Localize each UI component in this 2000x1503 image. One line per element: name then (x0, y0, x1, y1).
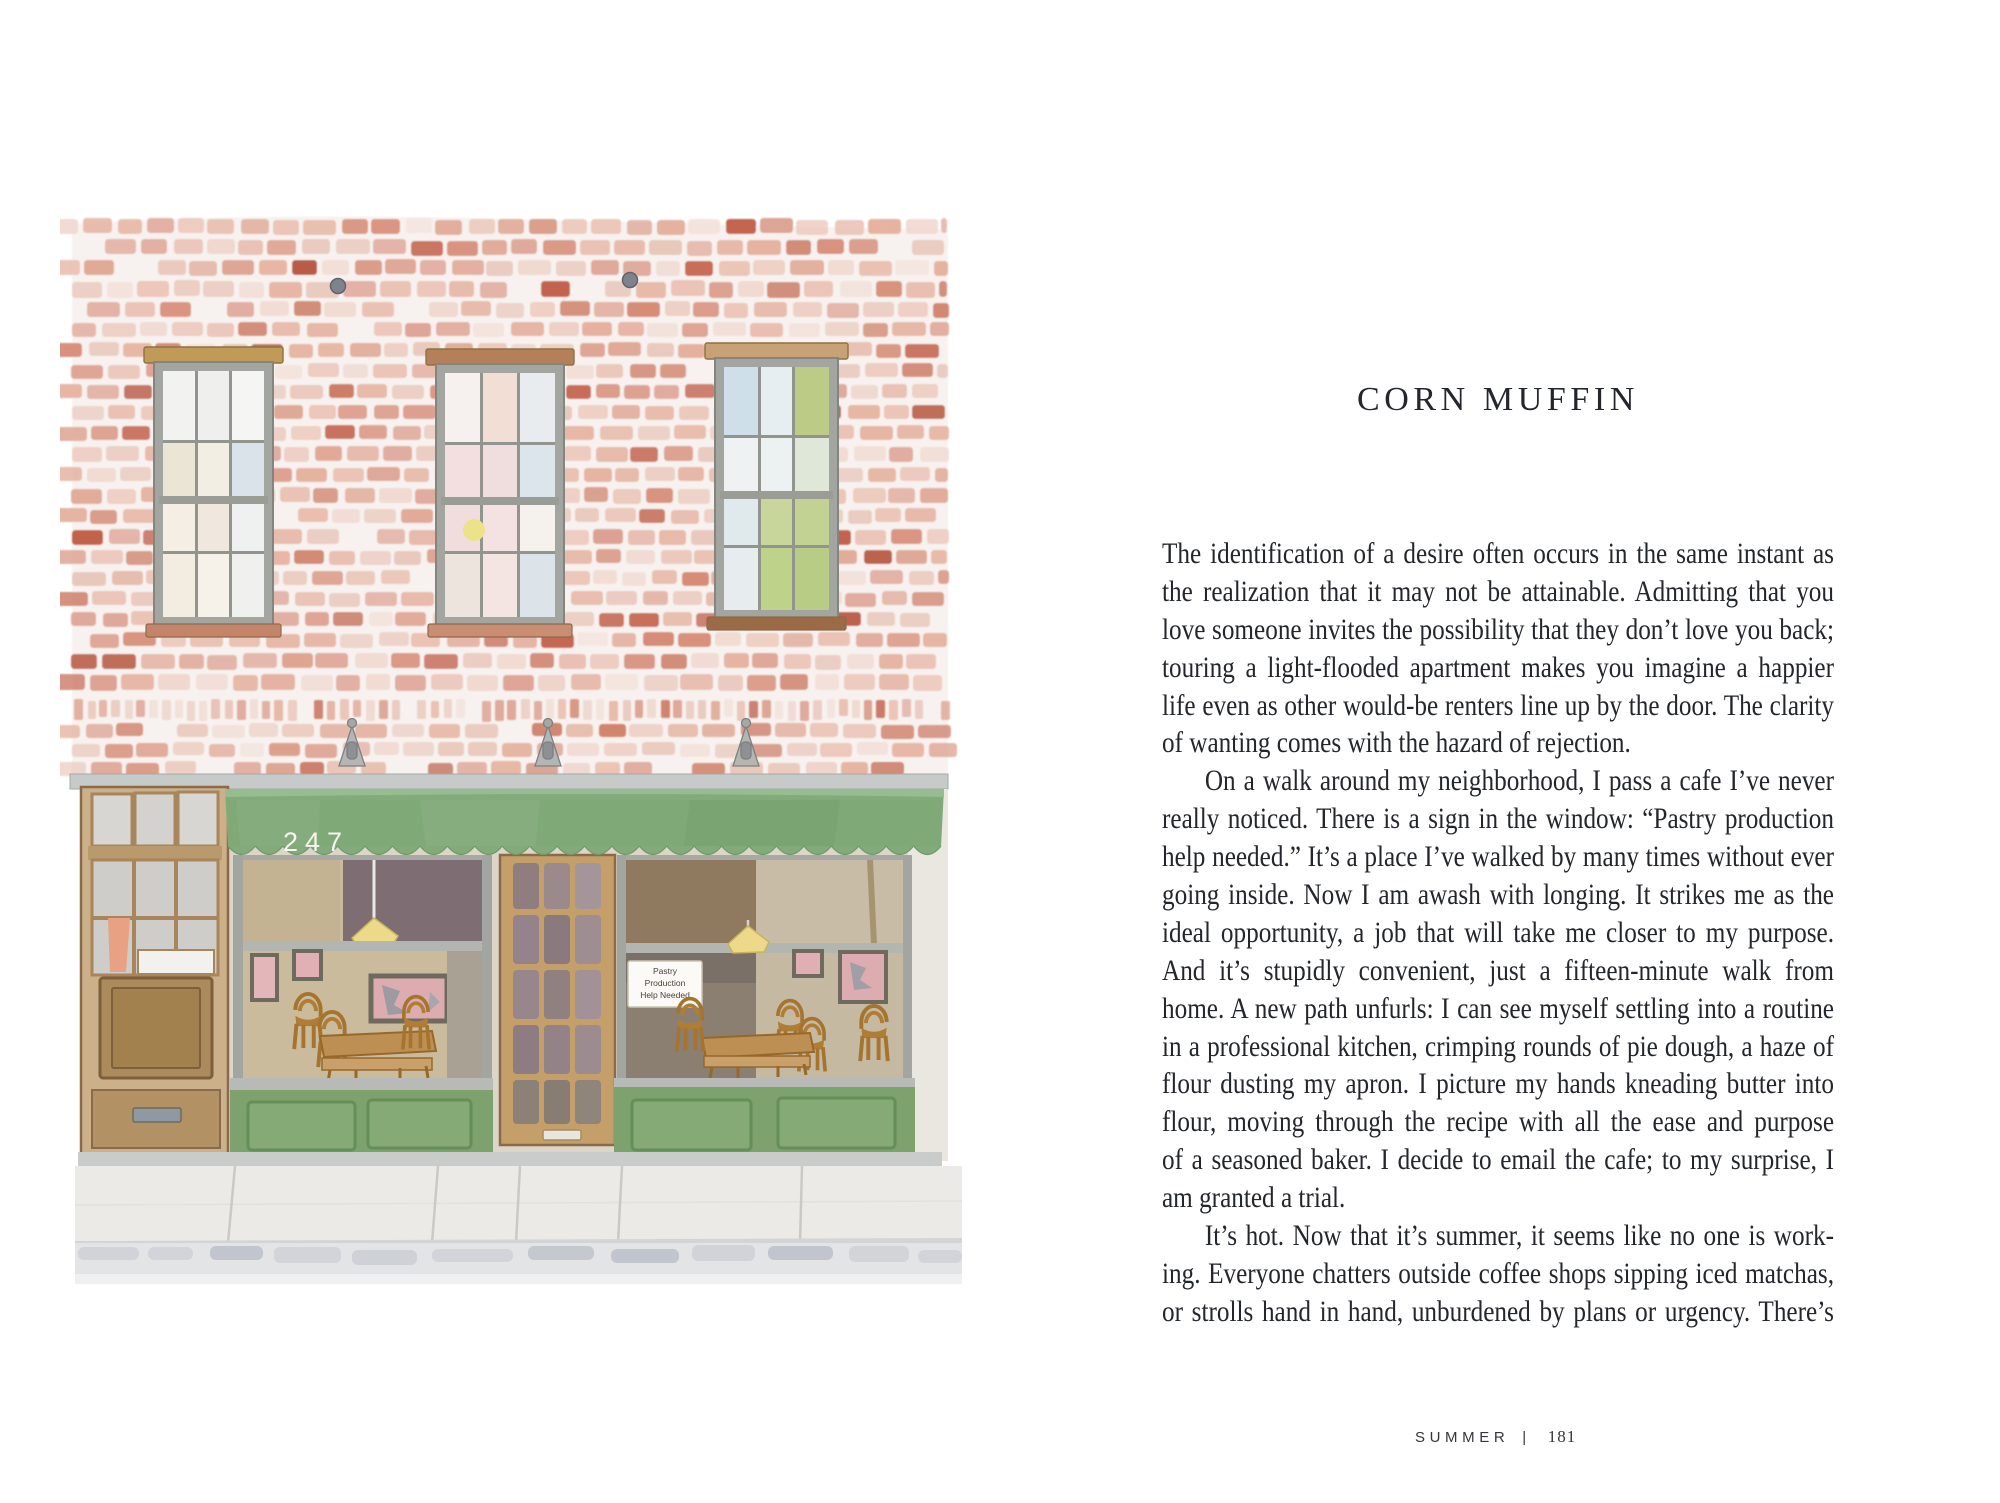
svg-text:Pastry: Pastry (653, 966, 678, 976)
svg-text:Help Needed: Help Needed (640, 990, 690, 1000)
svg-text:Production: Production (645, 978, 686, 988)
svg-text:247: 247 (283, 827, 349, 857)
